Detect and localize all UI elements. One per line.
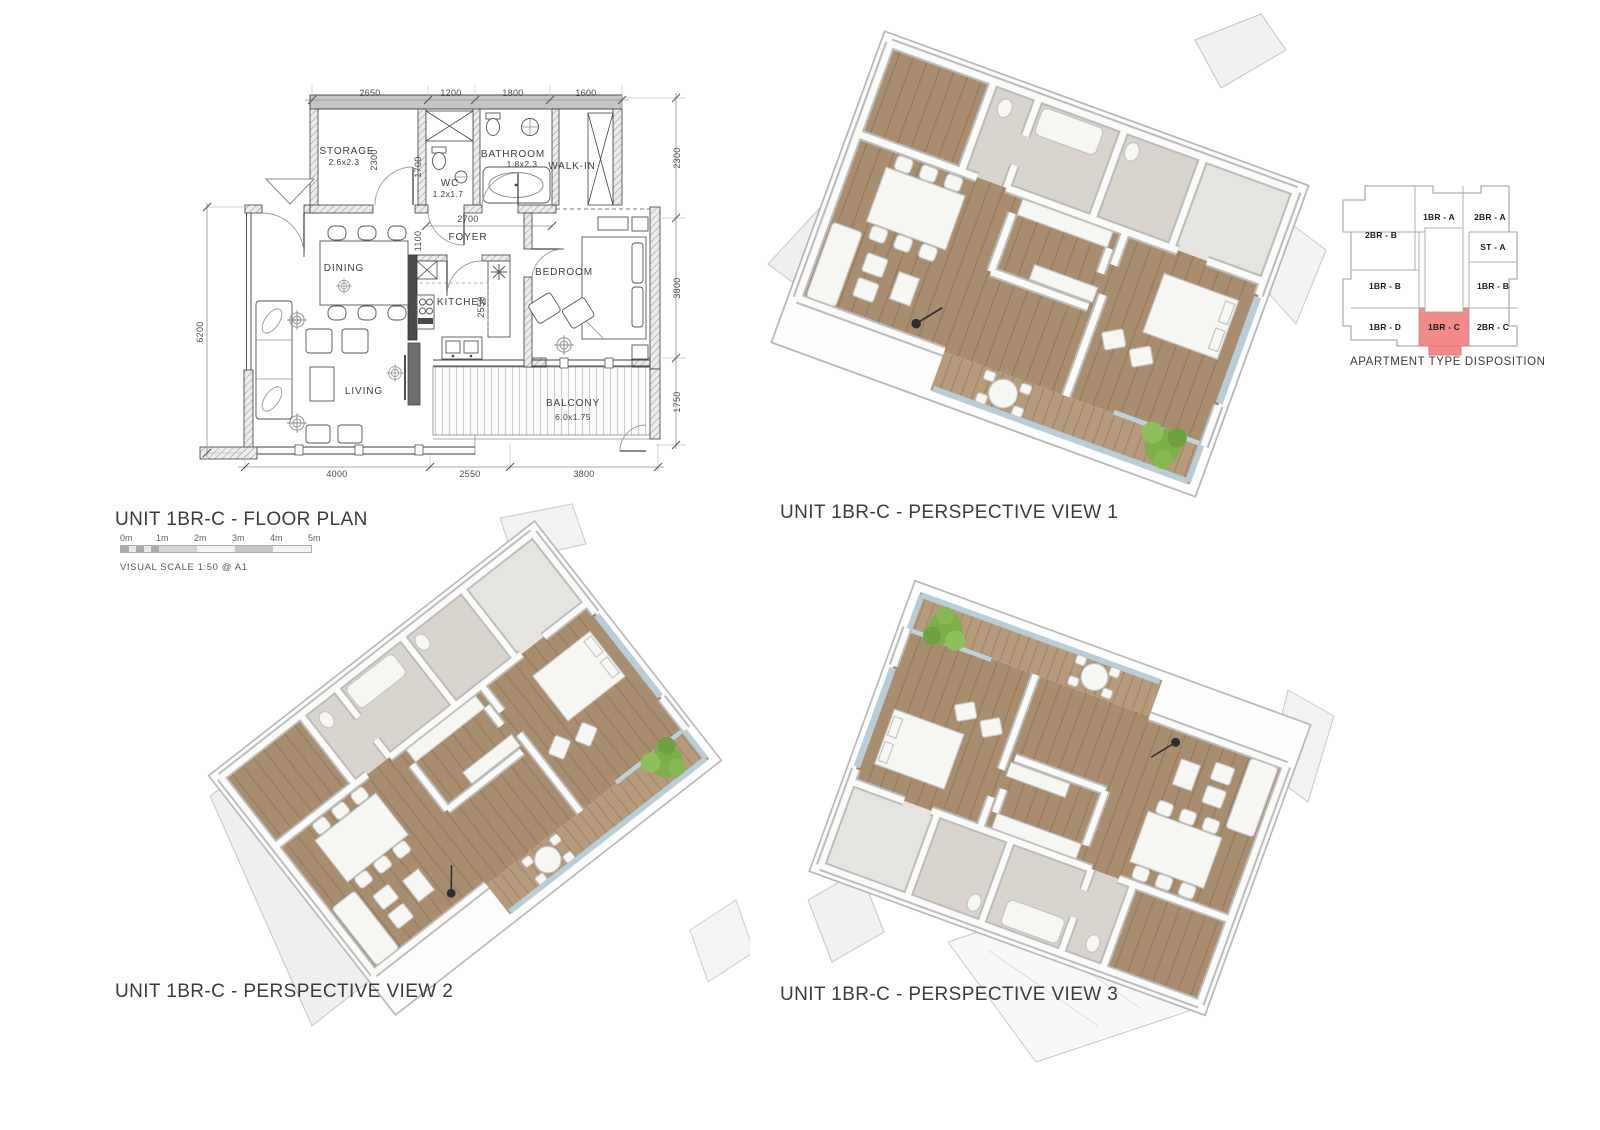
svg-text:3800: 3800: [672, 277, 682, 298]
svg-text:2BR - A: 2BR - A: [1474, 212, 1506, 222]
floor-plan-drawing: STORAGE 2.6x2.3 WC 1.2x1.7 BATHROOM 1.8x…: [180, 55, 720, 525]
svg-text:1800: 1800: [502, 88, 523, 98]
highlighted-unit-step: [1429, 346, 1461, 355]
svg-text:2550: 2550: [476, 296, 486, 317]
key-plan-caption: APARTMENT TYPE DISPOSITION: [1350, 356, 1546, 368]
room-label-balcony: BALCONY: [546, 398, 600, 409]
svg-text:ST - A: ST - A: [1480, 242, 1505, 252]
perspective-view-2-label: UNIT 1BR-C - PERSPECTIVE VIEW 2: [115, 981, 453, 1003]
living-dining-furniture: [256, 226, 420, 443]
svg-text:1BR - B: 1BR - B: [1369, 281, 1401, 291]
perspective-view-1-label: UNIT 1BR-C - PERSPECTIVE VIEW 1: [780, 502, 1118, 524]
room-size-balcony: 6.0x1.75: [555, 412, 591, 422]
bedroom-furniture: [528, 217, 648, 359]
svg-text:1BR - C: 1BR - C: [1428, 322, 1460, 332]
room-size-storage: 2.6x2.3: [329, 157, 360, 167]
room-label-bedroom: BEDROOM: [535, 267, 593, 278]
perspective-view-3-label: UNIT 1BR-C - PERSPECTIVE VIEW 3: [780, 984, 1118, 1006]
svg-text:2700: 2700: [457, 214, 478, 224]
perspective-view-1: [740, 12, 1340, 512]
svg-text:1BR - D: 1BR - D: [1369, 322, 1401, 332]
room-size-wc: 1.2x1.7: [433, 189, 464, 199]
svg-text:1200: 1200: [440, 88, 461, 98]
svg-text:3800: 3800: [573, 469, 594, 479]
svg-text:2550: 2550: [459, 469, 480, 479]
svg-text:6200: 6200: [195, 321, 205, 342]
svg-text:2300: 2300: [672, 147, 682, 168]
room-label-walkin: WALK-IN: [548, 161, 596, 172]
room-label-wc: WC: [441, 178, 459, 189]
perspective-view-2: [170, 500, 750, 1040]
room-label-foyer: FOYER: [449, 232, 488, 243]
svg-text:2BR - B: 2BR - B: [1365, 230, 1397, 240]
apartment-key-plan: 2BR - B 1BR - A 2BR - A ST - A 1BR - B 1…: [1335, 180, 1525, 356]
svg-text:1700: 1700: [413, 156, 423, 177]
svg-text:2BR - C: 2BR - C: [1477, 322, 1509, 332]
room-size-bathroom: 1.8x2.3: [507, 159, 538, 169]
svg-text:1600: 1600: [575, 88, 596, 98]
room-label-living: LIVING: [345, 386, 383, 397]
room-label-dining: DINING: [324, 263, 364, 274]
drawing-sheet: STORAGE 2.6x2.3 WC 1.2x1.7 BATHROOM 1.8x…: [0, 0, 1600, 1130]
room-label-storage: STORAGE: [319, 146, 374, 157]
svg-text:2300: 2300: [369, 149, 379, 170]
svg-text:4000: 4000: [326, 469, 347, 479]
entry-arrow: [266, 179, 314, 204]
svg-text:1BR - A: 1BR - A: [1423, 212, 1455, 222]
svg-text:1750: 1750: [672, 391, 682, 412]
svg-text:1100: 1100: [413, 231, 423, 252]
balcony-area: [433, 367, 652, 455]
svg-text:2650: 2650: [359, 88, 380, 98]
svg-text:1BR - B: 1BR - B: [1477, 281, 1509, 291]
